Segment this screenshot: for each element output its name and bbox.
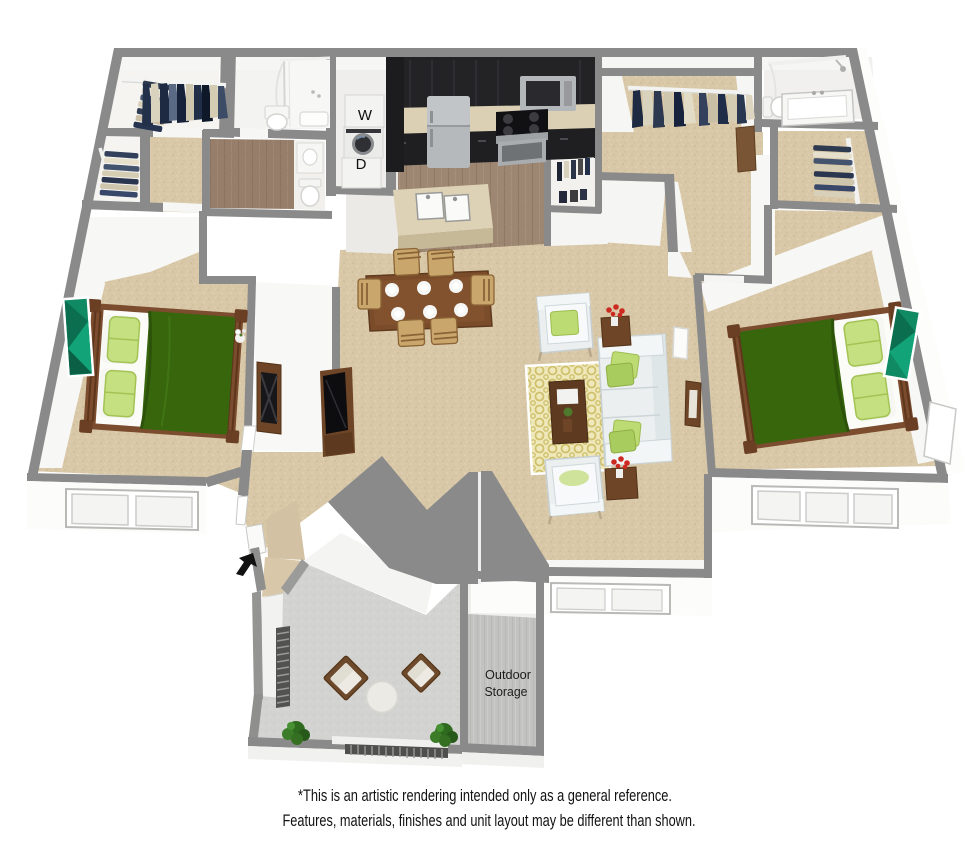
svg-text:Outdoor: Outdoor — [485, 667, 532, 682]
svg-text:Storage: Storage — [485, 684, 528, 699]
svg-text:Features, materials, finishes: Features, materials, finishes and unit l… — [283, 812, 696, 830]
svg-text:D: D — [356, 156, 367, 173]
svg-text:*This is an artistic rendering: *This is an artistic rendering intended … — [298, 787, 672, 805]
svg-text:W: W — [358, 107, 373, 124]
